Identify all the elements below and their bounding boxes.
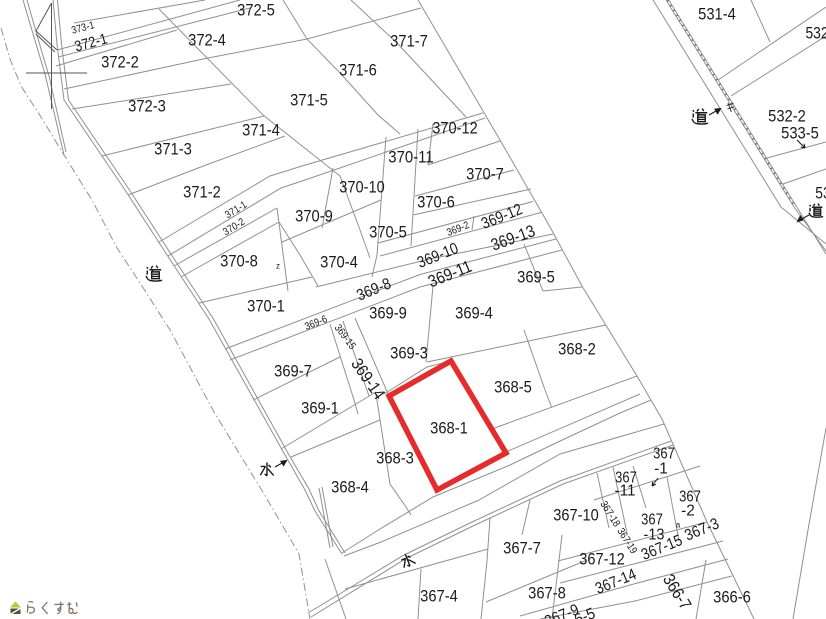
- svg-text:368-5: 368-5: [494, 378, 532, 397]
- svg-text:367-12: 367-12: [579, 550, 624, 569]
- svg-text:370-9: 370-9: [295, 207, 333, 226]
- svg-text:370-4: 370-4: [320, 253, 358, 272]
- svg-text:372-5: 372-5: [237, 1, 275, 20]
- svg-text:368-3: 368-3: [376, 449, 414, 468]
- svg-text:367-10: 367-10: [553, 506, 598, 525]
- svg-text:369-4: 369-4: [455, 304, 493, 323]
- svg-text:-1: -1: [654, 461, 668, 478]
- svg-text:369-5: 369-5: [517, 268, 555, 287]
- svg-text:367-7: 367-7: [503, 539, 541, 558]
- svg-text:531-4: 531-4: [698, 5, 736, 24]
- svg-text:370-12: 370-12: [432, 119, 477, 138]
- svg-text:372-3: 372-3: [128, 97, 166, 116]
- svg-text:370-11: 370-11: [388, 148, 433, 167]
- svg-text:533-5: 533-5: [781, 124, 819, 143]
- svg-text:372-2: 372-2: [101, 53, 139, 72]
- svg-text:370-1: 370-1: [247, 297, 285, 316]
- svg-text:371-3: 371-3: [154, 140, 192, 159]
- svg-text:370-8: 370-8: [220, 252, 258, 271]
- svg-text:370-5: 370-5: [369, 223, 407, 242]
- svg-text:366-6: 366-6: [713, 588, 751, 607]
- svg-text:369-7: 369-7: [274, 362, 312, 381]
- svg-text:371-5: 371-5: [290, 91, 328, 110]
- svg-text:367-8: 367-8: [528, 584, 566, 603]
- svg-text:369-9: 369-9: [369, 304, 407, 323]
- svg-text:370-6: 370-6: [417, 193, 455, 212]
- svg-text:369-1: 369-1: [301, 399, 339, 418]
- svg-text:368-1: 368-1: [430, 419, 468, 438]
- svg-text:367-4: 367-4: [420, 587, 458, 606]
- svg-text:369-3: 369-3: [390, 344, 428, 363]
- svg-text:532: 532: [805, 24, 826, 43]
- svg-text:371-6: 371-6: [339, 61, 377, 80]
- svg-text:371-7: 371-7: [390, 32, 428, 51]
- svg-text:368-2: 368-2: [558, 340, 596, 359]
- svg-text:372-4: 372-4: [188, 31, 226, 50]
- svg-text:371-4: 371-4: [242, 121, 280, 140]
- svg-text:-11: -11: [615, 483, 636, 500]
- svg-text:-2: -2: [681, 503, 695, 520]
- svg-text:a: a: [676, 521, 681, 530]
- svg-text:371-2: 371-2: [183, 183, 221, 202]
- svg-text:370-10: 370-10: [339, 178, 384, 197]
- svg-text:z: z: [276, 262, 280, 271]
- svg-text:370-7: 370-7: [466, 165, 504, 184]
- svg-text:53: 53: [815, 184, 826, 203]
- svg-text:368-4: 368-4: [331, 478, 369, 497]
